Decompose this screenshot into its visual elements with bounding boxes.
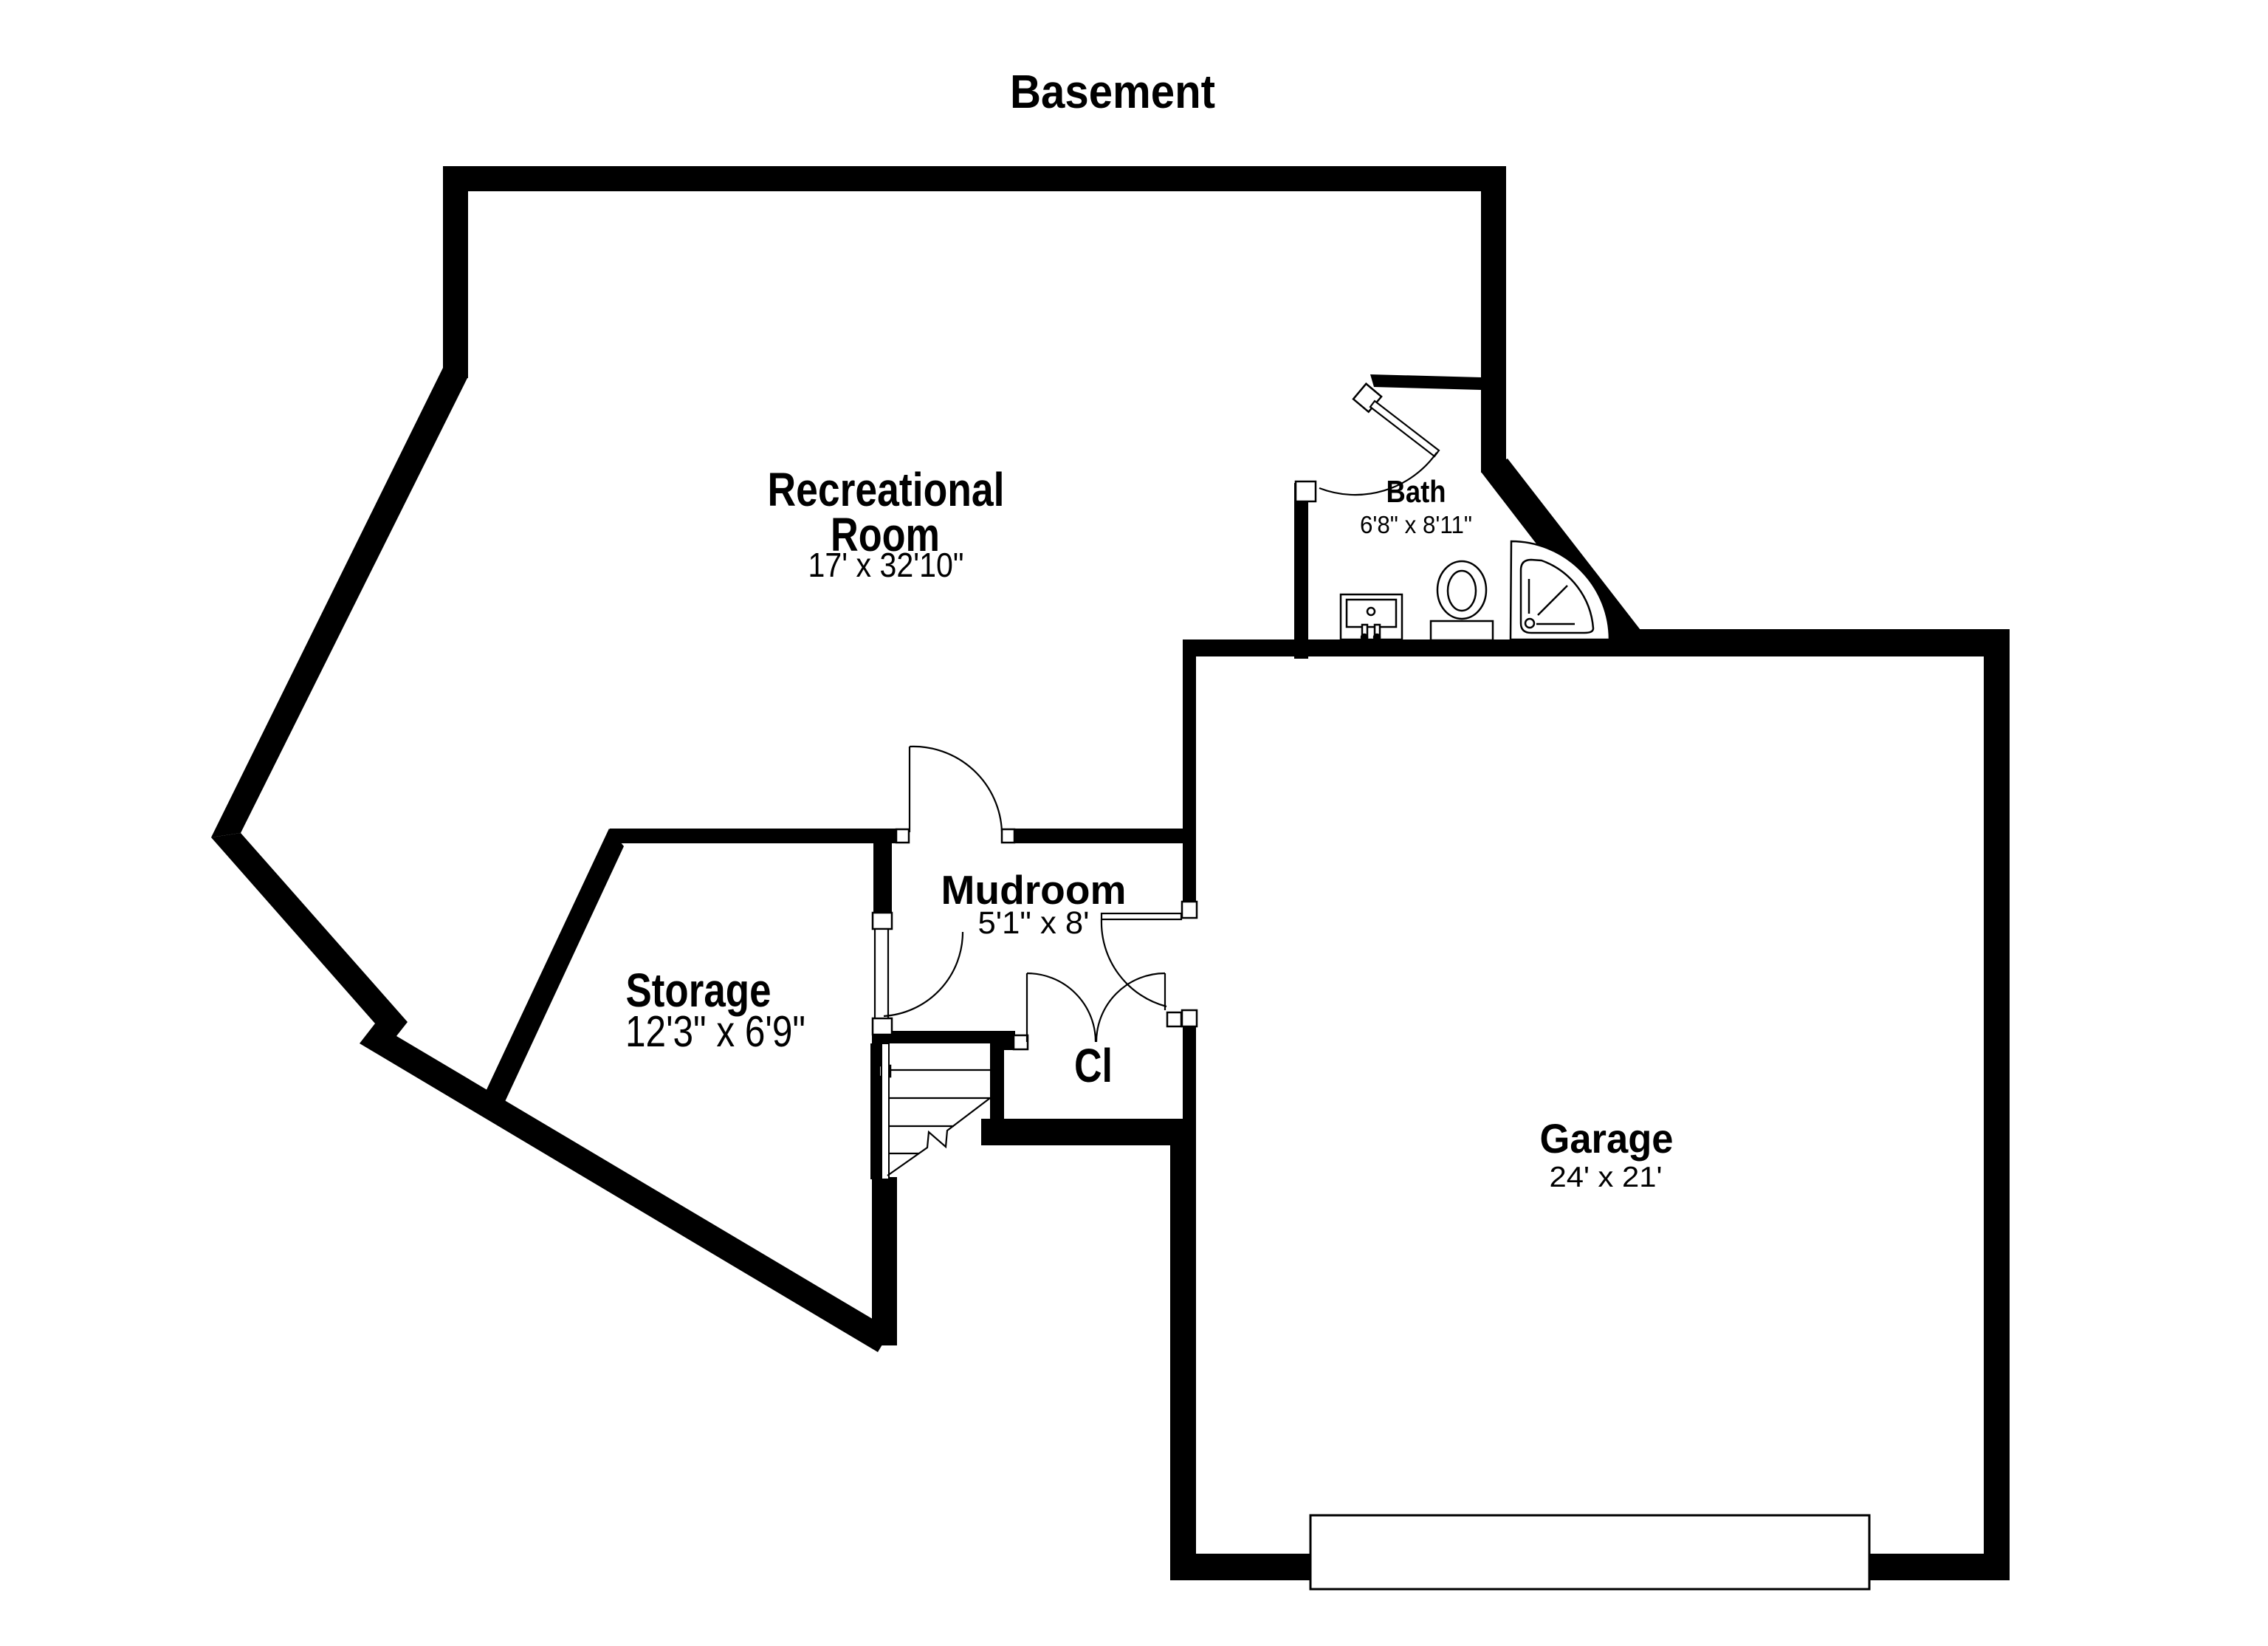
svg-text:Bath: Bath — [1386, 474, 1446, 509]
svg-text:Cl: Cl — [1074, 1039, 1113, 1092]
svg-text:5'1" x 8': 5'1" x 8' — [978, 905, 1090, 941]
svg-text:12'3" x 6'9": 12'3" x 6'9" — [625, 1007, 805, 1056]
svg-text:Garage: Garage — [1540, 1115, 1674, 1162]
svg-text:6'8" x 8'11": 6'8" x 8'11" — [1360, 511, 1472, 538]
svg-text:Basement: Basement — [1010, 65, 1215, 118]
svg-text:24' x 21': 24' x 21' — [1550, 1162, 1663, 1193]
svg-text:17' x 32'10": 17' x 32'10" — [808, 546, 964, 584]
